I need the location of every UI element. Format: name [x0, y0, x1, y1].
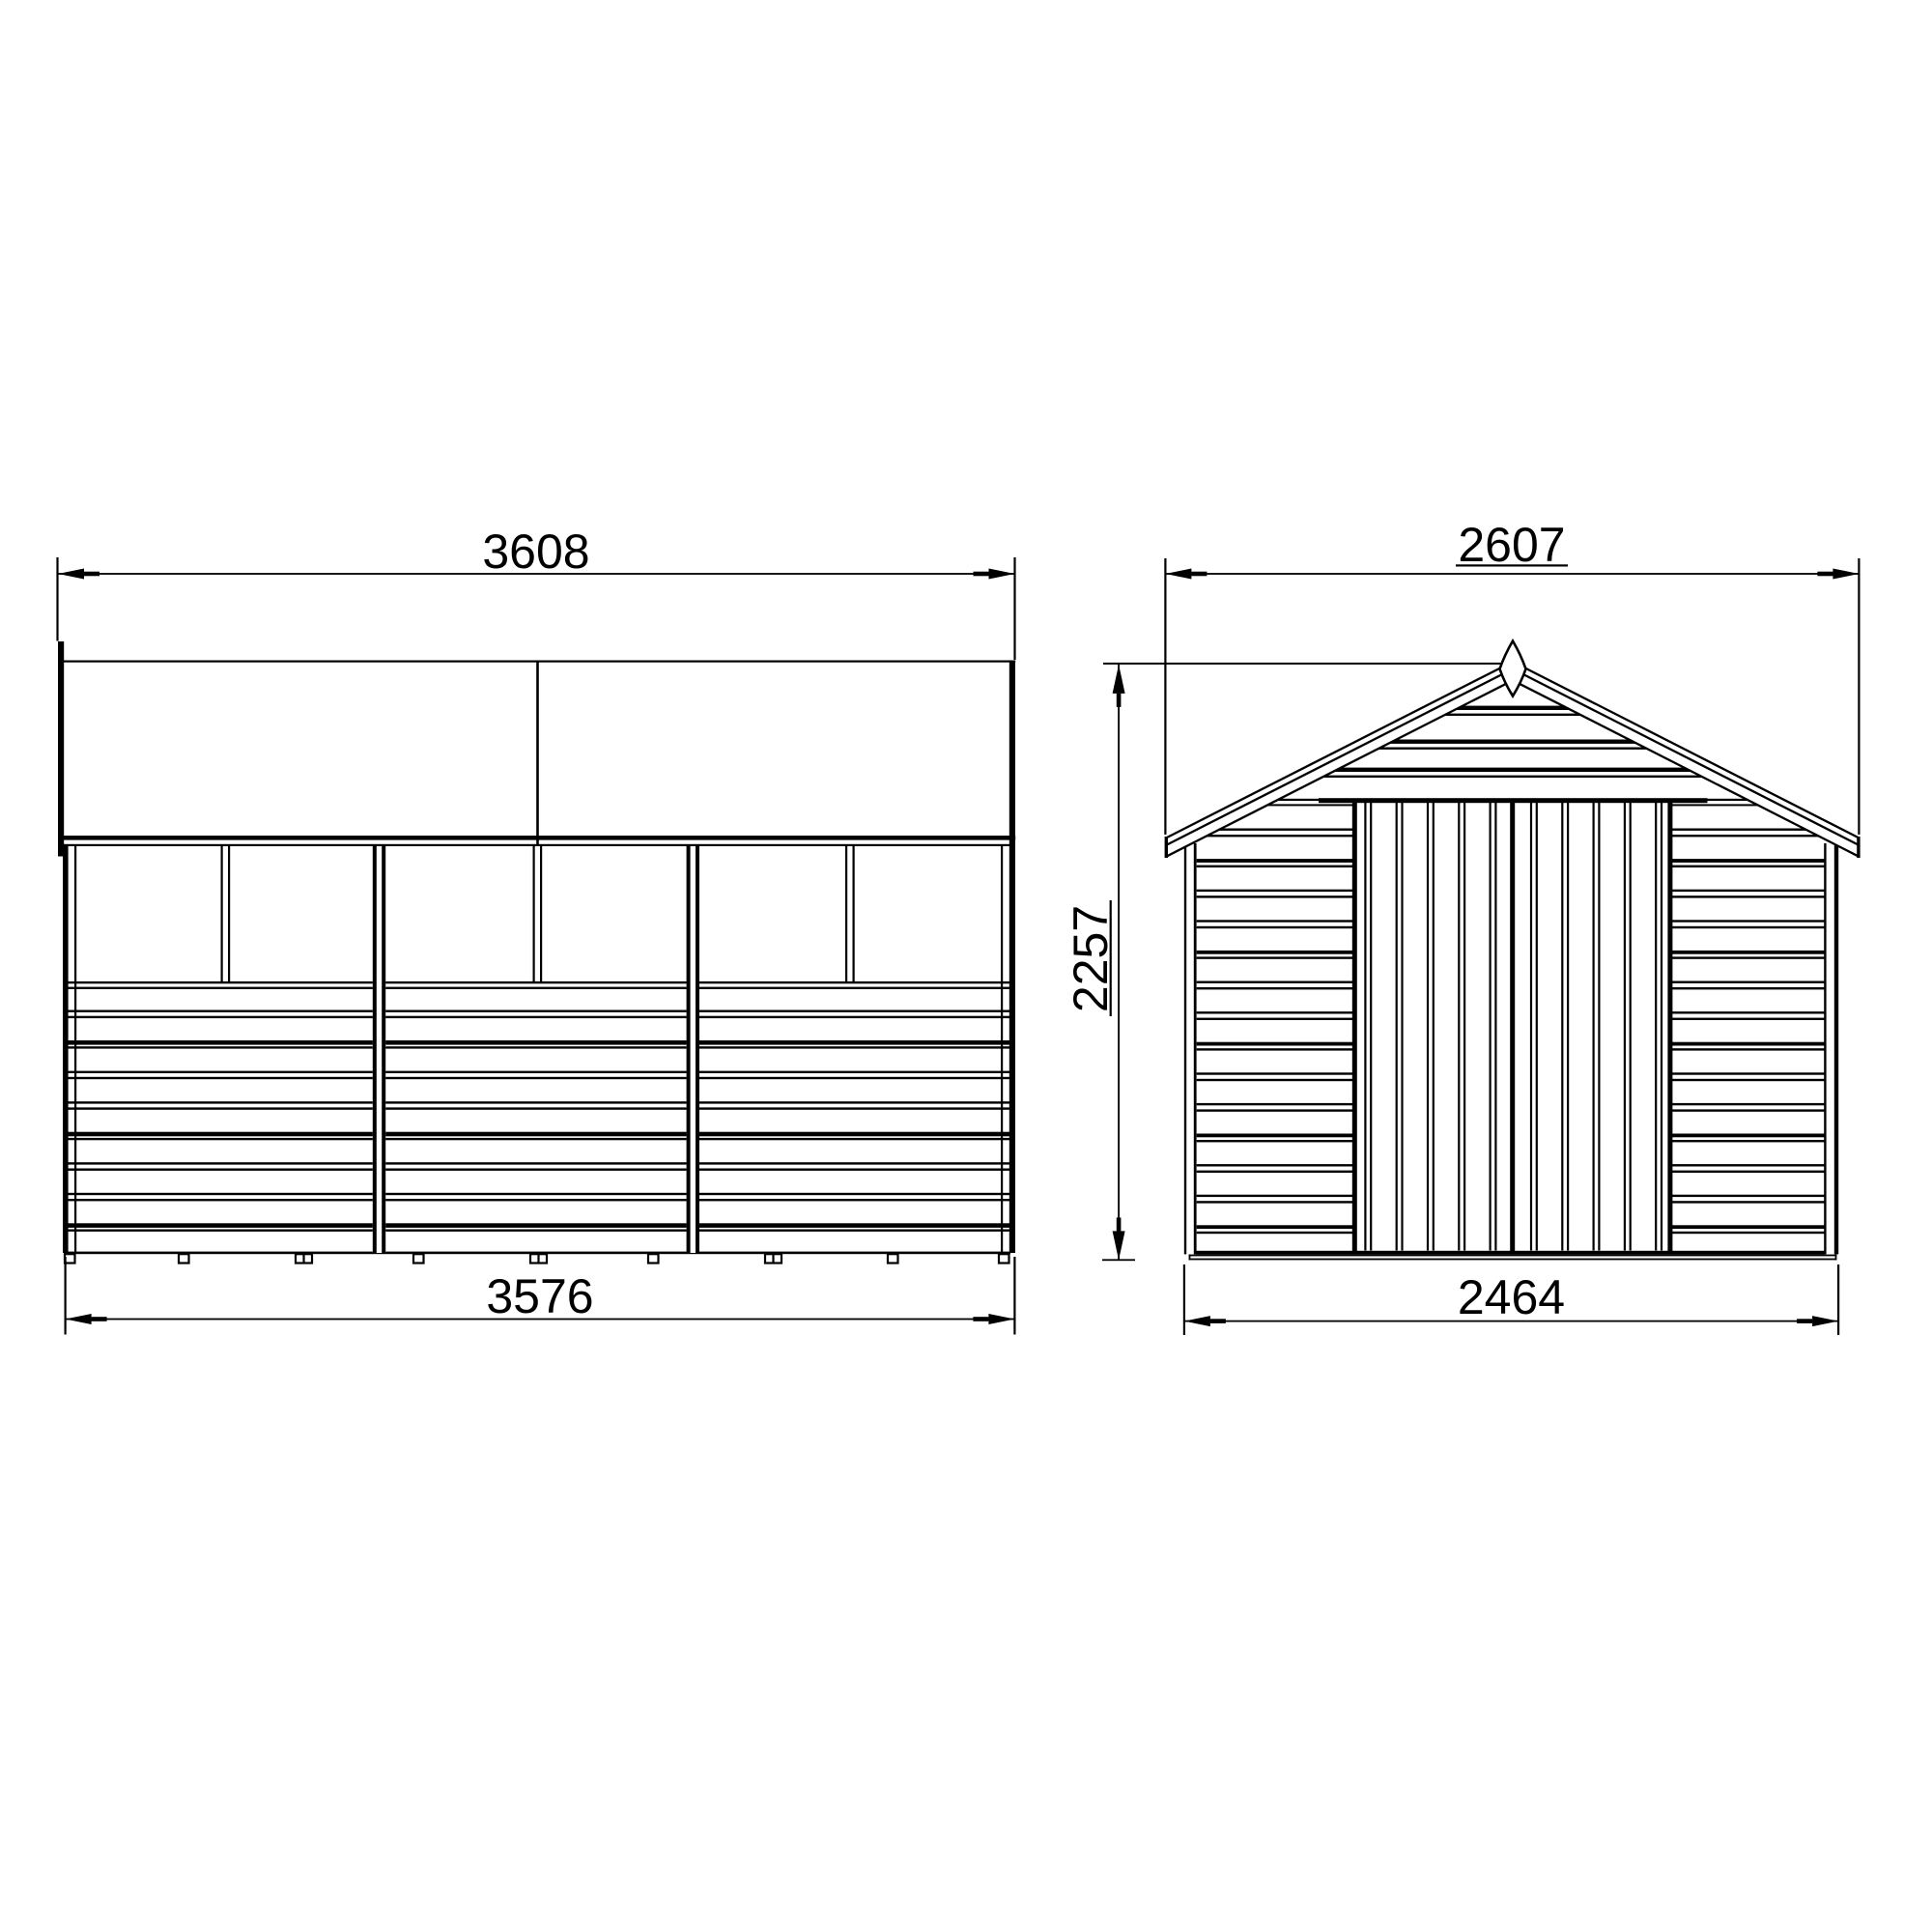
- svg-text:3576: 3576: [486, 1269, 593, 1323]
- svg-text:2607: 2607: [1458, 518, 1565, 572]
- svg-text:3608: 3608: [482, 525, 589, 579]
- svg-text:2464: 2464: [1458, 1270, 1565, 1324]
